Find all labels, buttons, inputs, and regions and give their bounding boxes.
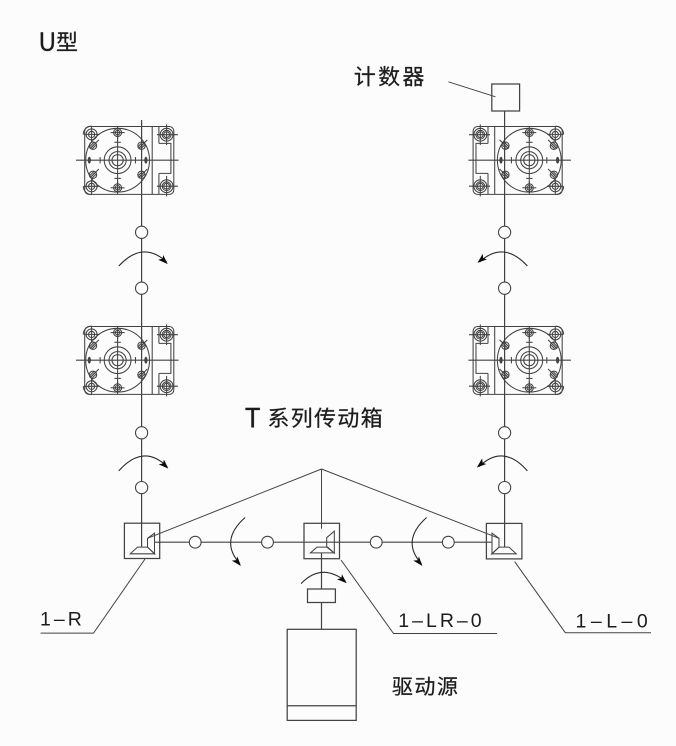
svg-text:1–LR–0: 1–LR–0 — [398, 610, 484, 632]
svg-text:1–L–0: 1–L–0 — [576, 610, 653, 632]
svg-text:1–R: 1–R — [40, 609, 85, 631]
